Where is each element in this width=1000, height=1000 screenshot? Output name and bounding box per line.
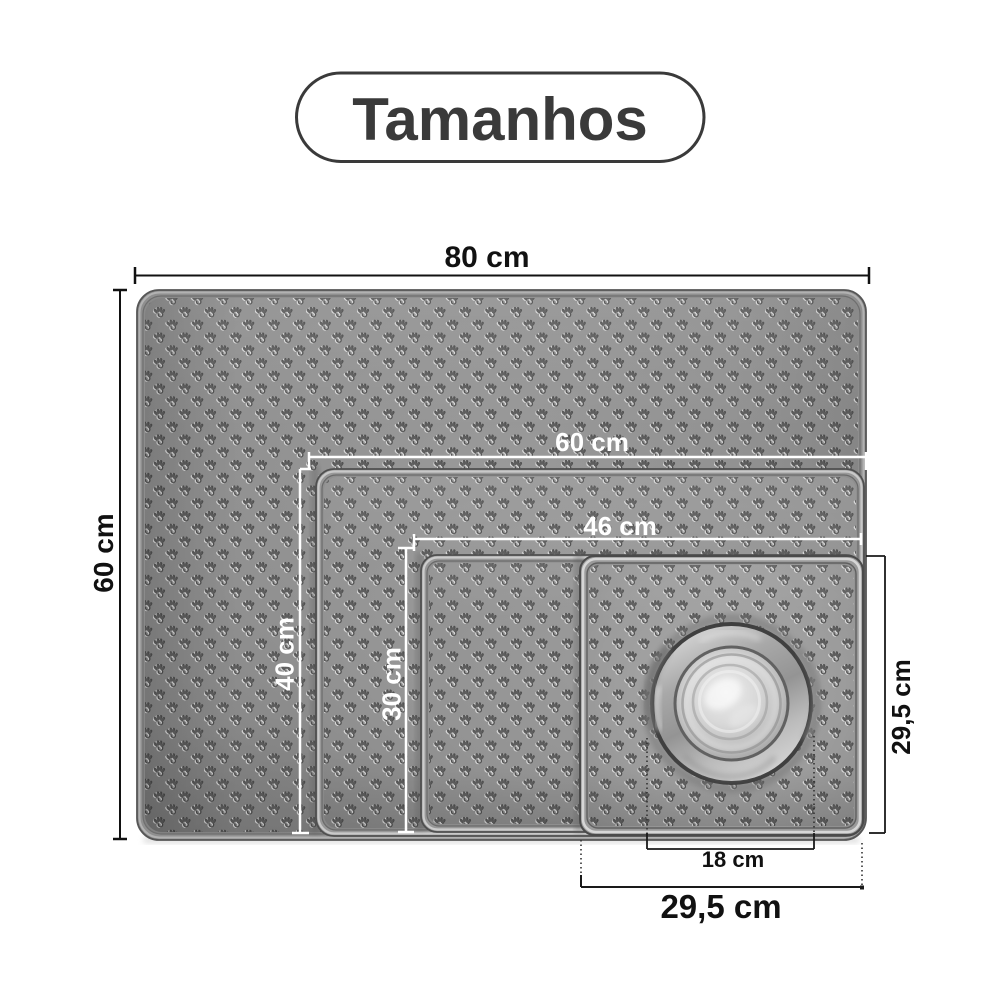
svg-text:18 cm: 18 cm [702,847,764,872]
svg-text:60 cm: 60 cm [88,513,119,592]
svg-text:30 cm: 30 cm [377,647,407,721]
svg-text:Tamanhos: Tamanhos [352,86,648,153]
svg-text:46 cm: 46 cm [583,511,657,541]
svg-text:29,5 cm: 29,5 cm [660,888,781,925]
svg-text:60 cm: 60 cm [555,427,629,457]
svg-text:80 cm: 80 cm [444,241,529,274]
svg-text:29,5 cm: 29,5 cm [886,659,916,754]
svg-text:40 cm: 40 cm [270,617,300,691]
